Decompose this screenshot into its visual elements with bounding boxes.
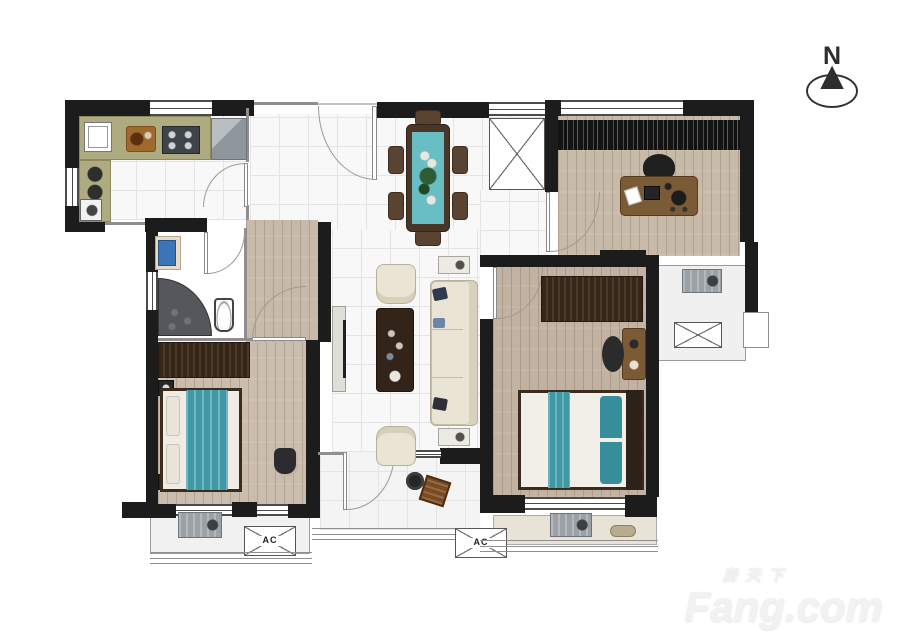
bathroom-door-arc [207,232,245,274]
wall-tv [318,222,331,342]
armchair-north [376,264,416,304]
washing-machine [80,199,102,221]
sofa-pillow-2 [433,318,445,328]
wall-east-exterior [745,242,758,312]
watermark-en: Fang.com [685,585,883,629]
bedroom2-wardrobe [158,342,250,378]
east-pipe-box [743,312,769,348]
wall-bedroom2-bottom-mid [232,502,257,517]
cutting-board [126,126,156,152]
refrigerator [211,118,247,160]
wall-bedroom2-right [306,340,320,518]
wall-kitchen-left-upper [65,100,79,168]
kitchen-west-window [65,168,79,206]
dining-chair-bottom [415,230,441,246]
bathroom-corridor-divider [244,228,247,340]
wall-master-bottom-right [625,495,657,517]
master-wardrobe [541,276,643,322]
duct-shaft [489,118,545,190]
master-headboard [626,390,642,490]
wall-bathroom-top [145,218,207,232]
dining-chair-left-2 [388,192,404,220]
bathroom-sink [158,240,176,266]
bedroom2-pillow-2 [166,444,180,484]
dressing-table [622,328,646,380]
wall-balcony-door [440,448,480,464]
ac-outdoor-unit-south [550,513,592,537]
wall-study-top-corner [545,100,561,116]
dining-chair-left-1 [388,146,404,174]
bedroom2-south-window-b [257,504,288,516]
stove [162,126,200,154]
entry-threshold-edge [318,103,377,105]
side-table-south [438,428,470,446]
wall-study-right [740,116,754,242]
balcony-door-edge [318,452,346,455]
bathroom-west-window [146,272,158,310]
ac-platform-box-east [674,322,722,348]
wall-bedroom2-left [146,344,158,506]
master-bed-runner [548,392,570,488]
bedroom2-pillow-1 [166,396,180,436]
wall-bathroom-left-lower [146,310,158,344]
left-platform-railing [150,552,312,564]
wall-study-top-right [683,100,754,116]
dining-chair-right-1 [452,146,468,174]
shaft-north-window [489,102,545,116]
ac-label-left: AC [261,536,280,546]
dining-chair-right-2 [452,192,468,220]
kitchen-bottom-edge [105,222,145,225]
wall-bedroom2-bottom-left [146,504,176,518]
wall-study-left [545,116,558,192]
study-curtain [558,120,740,150]
sofa-pillow-3 [432,397,448,411]
master-south-window [525,497,625,510]
tv [343,320,346,378]
floor-plan-page: AC AC N ▲ 房天下 Fang.com [0,0,897,637]
inner-hall-floor [480,190,546,260]
study-laptop [644,186,660,200]
wall-master-bottom-left [480,495,525,513]
side-table-north [438,256,470,274]
armchair-south [376,426,416,466]
compass-north-icon: ▲ [806,56,858,96]
entry-north-edge [254,102,318,105]
wall-master-left [480,319,493,497]
watermark: 房天下 Fang.com [685,564,883,629]
kitchen-north-window [150,100,212,116]
coffee-table [376,308,414,392]
wall-master-right [646,255,659,497]
ac-outdoor-unit-east [682,269,722,293]
kitchen-sink [84,122,112,152]
kitchen-east-edge-lower [246,205,249,220]
wall-master-top [480,255,646,267]
bedroom2-blanket [186,390,228,490]
dining-table-runner [412,132,444,224]
study-north-window [561,100,683,116]
watermark-cn: 房天下 [723,564,883,585]
south-strip-item [610,525,636,537]
bedroom2-chair [274,448,296,474]
shower [158,278,212,336]
ac-outdoor-unit-left [178,512,222,538]
south-east-railing [480,540,658,552]
master-pillows [600,396,622,484]
dressing-chair [602,336,624,372]
toilet [214,298,234,332]
